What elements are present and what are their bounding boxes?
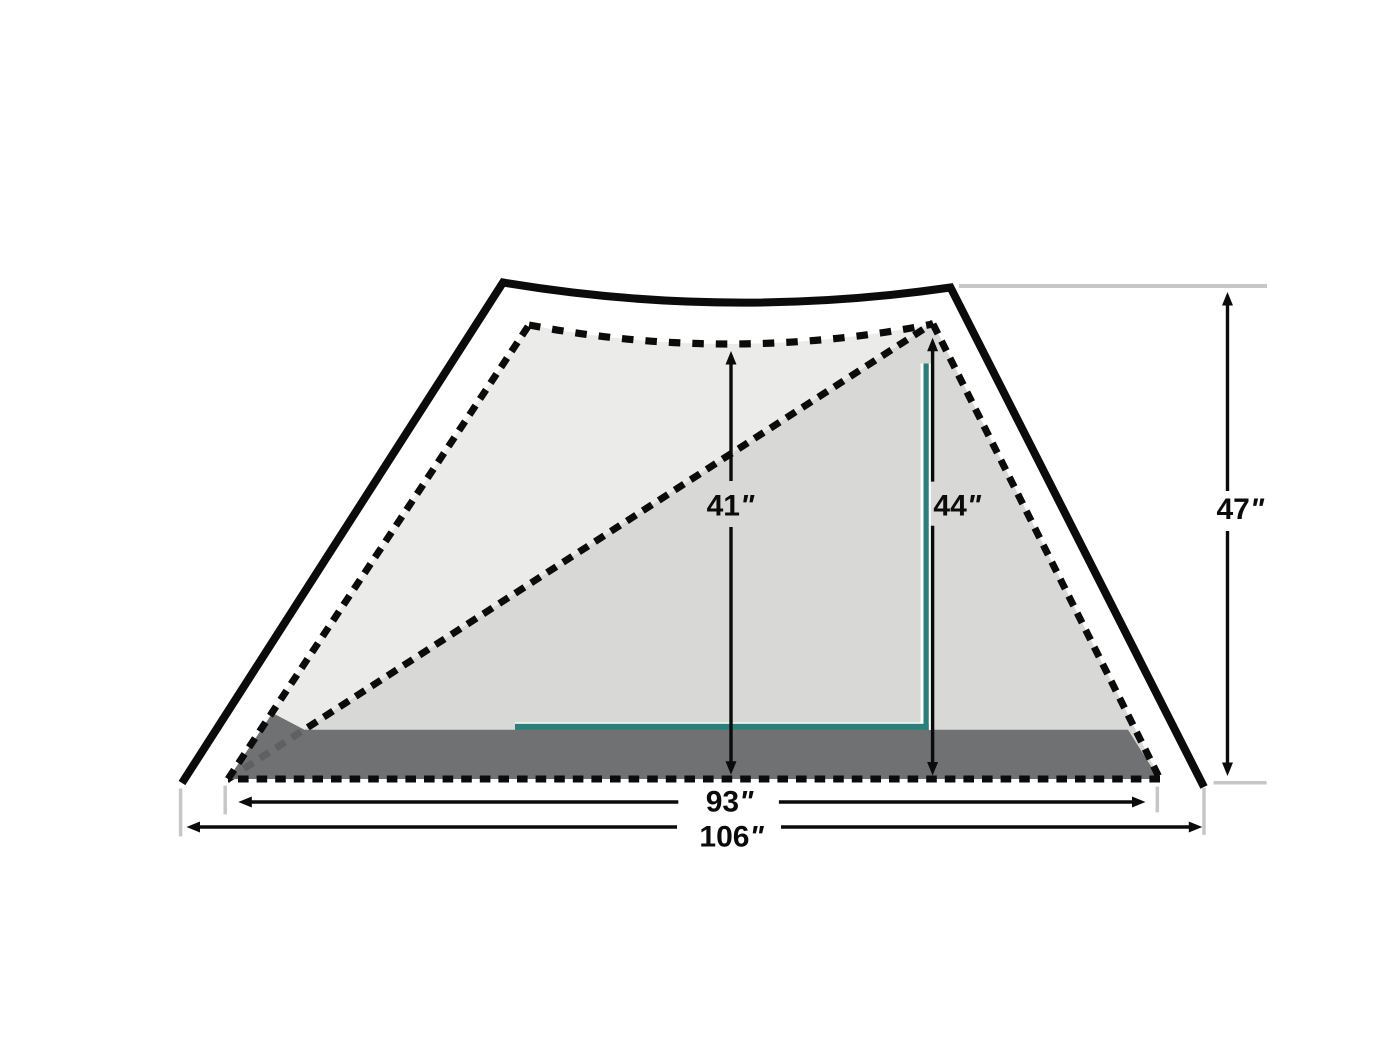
svg-text:93": 93": [706, 785, 754, 818]
svg-text:41": 41": [707, 490, 755, 523]
svg-text:47": 47": [1217, 493, 1265, 526]
svg-text:44": 44": [933, 490, 981, 523]
svg-text:106": 106": [699, 820, 764, 853]
